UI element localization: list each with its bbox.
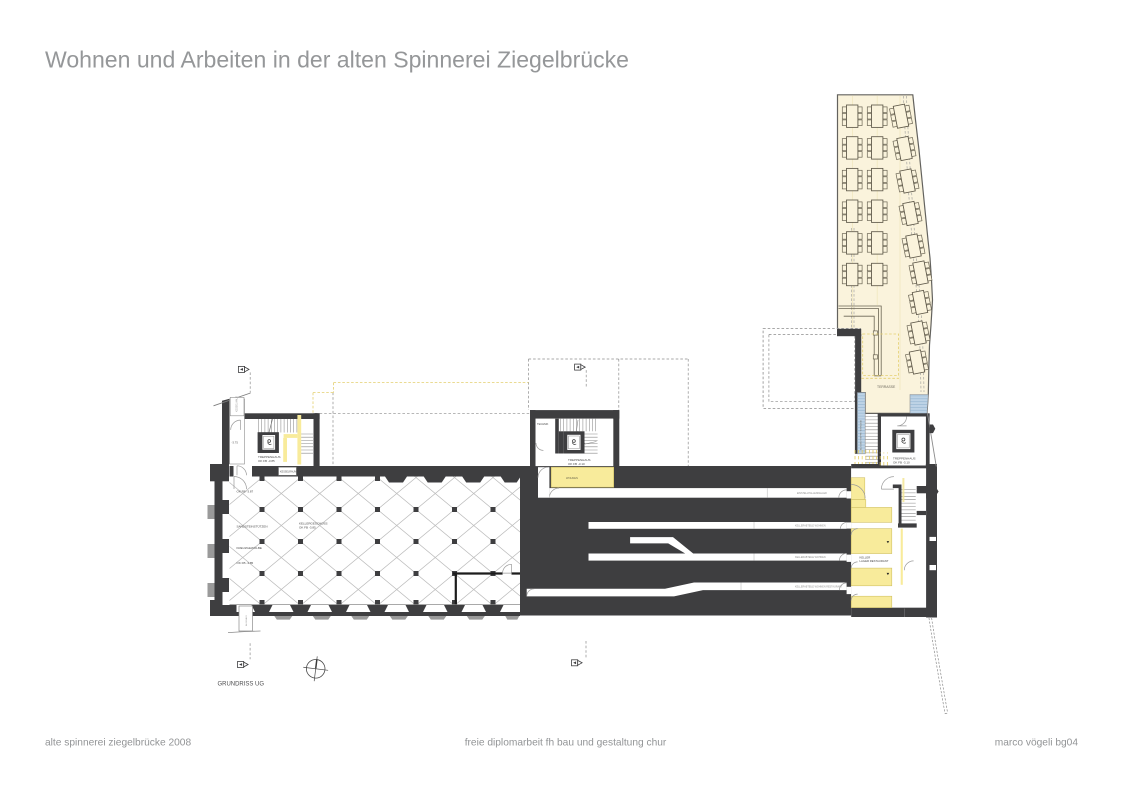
svg-text:KESSELHAUS: KESSELHAUS	[236, 396, 239, 412]
svg-text:KELLERABTEILE WOHNEN: KELLERABTEILE WOHNEN	[795, 525, 826, 528]
svg-text:AUSGANG: AUSGANG	[245, 615, 248, 626]
svg-text:WOHNEN: WOHNEN	[566, 476, 578, 480]
svg-text:OK FB -3.85: OK FB -3.85	[258, 459, 275, 463]
svg-text:EINSTELLHALLENKELLER: EINSTELLHALLENKELLER	[797, 492, 827, 495]
svg-text:KELLERABTEILE WOHNEN: KELLERABTEILE WOHNEN	[795, 556, 826, 559]
svg-text:OK FB -3.85: OK FB -3.85	[237, 561, 254, 565]
svg-text:KESSELRAUM: KESSELRAUM	[280, 471, 296, 474]
svg-text:KELLERABTEILE WOHNEN RESTAURAN: KELLERABTEILE WOHNEN RESTAURANT	[795, 586, 843, 589]
svg-text:alte spinnerei ziegelbrücke 20: alte spinnerei ziegelbrücke 2008	[45, 738, 191, 749]
svg-text:OK FB -3.10: OK FB -3.10	[893, 461, 910, 465]
svg-text:TECHNIK: TECHNIK	[537, 422, 549, 426]
svg-text:Wohnen und Arbeiten in der alt: Wohnen und Arbeiten in der alten Spinner…	[45, 47, 629, 73]
svg-text:marco vögeli bg04: marco vögeli bg04	[995, 738, 1079, 749]
svg-text:GRUNDRISS UG: GRUNDRISS UG	[218, 682, 265, 688]
svg-text:freie diplomarbeit fh bau und: freie diplomarbeit fh bau und gestaltung…	[465, 738, 667, 749]
svg-text:AUSSENTREPPE TERRASSE: AUSSENTREPPE TERRASSE	[860, 419, 863, 450]
svg-text:SANDSTEINSTÜTZEN: SANDSTEINSTÜTZEN	[237, 525, 268, 529]
svg-text:TERRASSE: TERRASSE	[877, 385, 896, 389]
svg-text:OK FB -3.87: OK FB -3.87	[237, 490, 254, 494]
svg-text:OK FB -3.10: OK FB -3.10	[568, 462, 585, 466]
svg-text:LAGER RESTAURANT: LAGER RESTAURANT	[860, 559, 889, 563]
svg-text:KREUZGEWÖLBE: KREUZGEWÖLBE	[237, 546, 262, 550]
svg-text:-3.75: -3.75	[232, 441, 239, 445]
svg-text:OK FB -3.85: OK FB -3.85	[299, 526, 316, 530]
